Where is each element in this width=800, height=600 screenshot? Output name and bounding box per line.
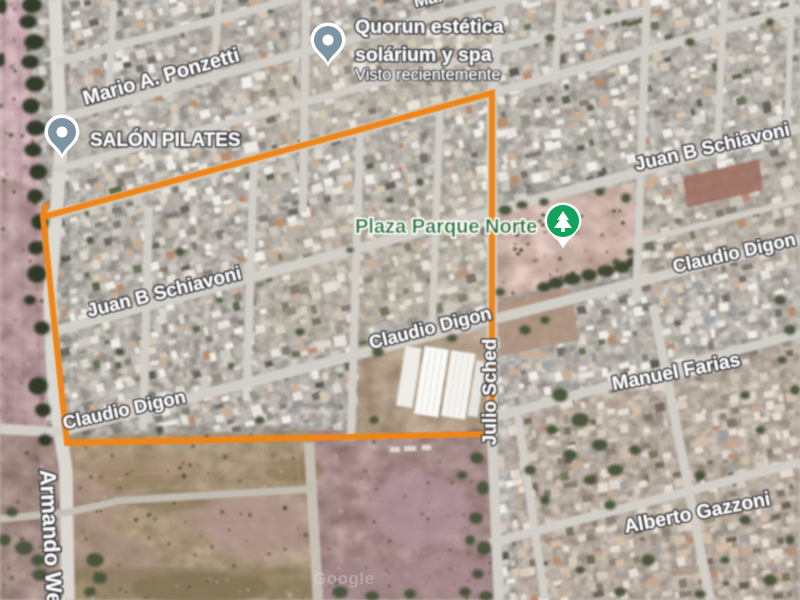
svg-text:Visto recientemente: Visto recientemente — [355, 66, 501, 84]
svg-text:solárium y spa: solárium y spa — [355, 44, 492, 66]
svg-text:Plaza Parque Norte: Plaza Parque Norte — [355, 216, 537, 238]
svg-text:SALÓN PILATES: SALÓN PILATES — [90, 129, 241, 151]
svg-text:Julio Sched: Julio Sched — [480, 339, 501, 446]
svg-text:Google: Google — [313, 569, 375, 588]
svg-text:Quorun estética: Quorun estética — [355, 16, 504, 38]
